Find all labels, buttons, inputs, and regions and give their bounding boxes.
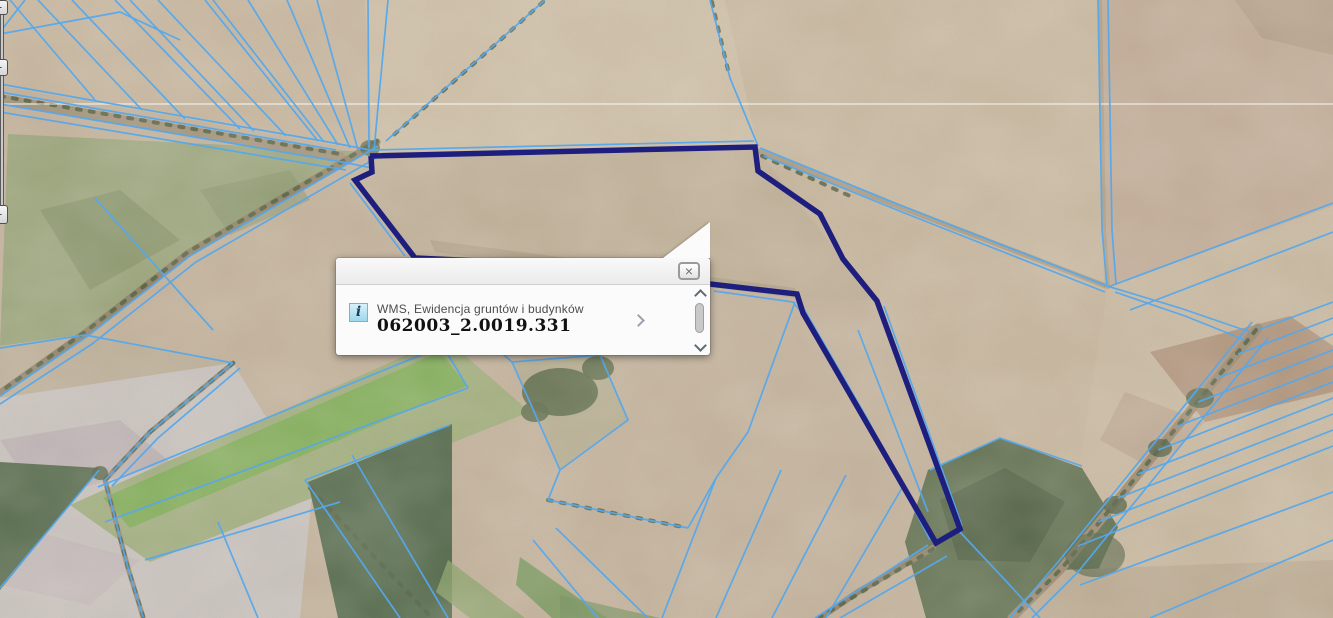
chevron-right-icon[interactable] [632,314,645,327]
popup-body: i WMS, Ewidencja gruntów i budynków 0620… [336,285,710,355]
popup-header[interactable]: × [336,258,710,285]
result-parcel-id: 062003_2.0019.331 [377,316,571,336]
scroll-up-icon[interactable] [694,289,707,302]
scrollbar-thumb[interactable] [695,303,704,333]
zoom-slider-track[interactable] [0,8,4,216]
info-icon: i [349,303,368,322]
zoom-slider-handle[interactable]: − [0,59,8,76]
popup-scrollbar[interactable] [692,288,707,352]
scroll-down-icon[interactable] [694,339,707,352]
zoom-out-button[interactable]: − [0,205,8,224]
identify-popup: × i WMS, Ewidencja gruntów i budynków 06… [336,258,710,355]
close-icon[interactable]: × [678,262,700,280]
result-layer-label: WMS, Ewidencja gruntów i budynków [377,302,584,316]
map-viewport[interactable]: + − − × i WMS, Ewidencja gruntów i budyn… [0,0,1333,618]
zoom-in-button[interactable]: + [0,0,8,15]
identify-result-item[interactable]: i WMS, Ewidencja gruntów i budynków 0620… [336,285,690,355]
popup-callout-pointer [663,222,710,258]
